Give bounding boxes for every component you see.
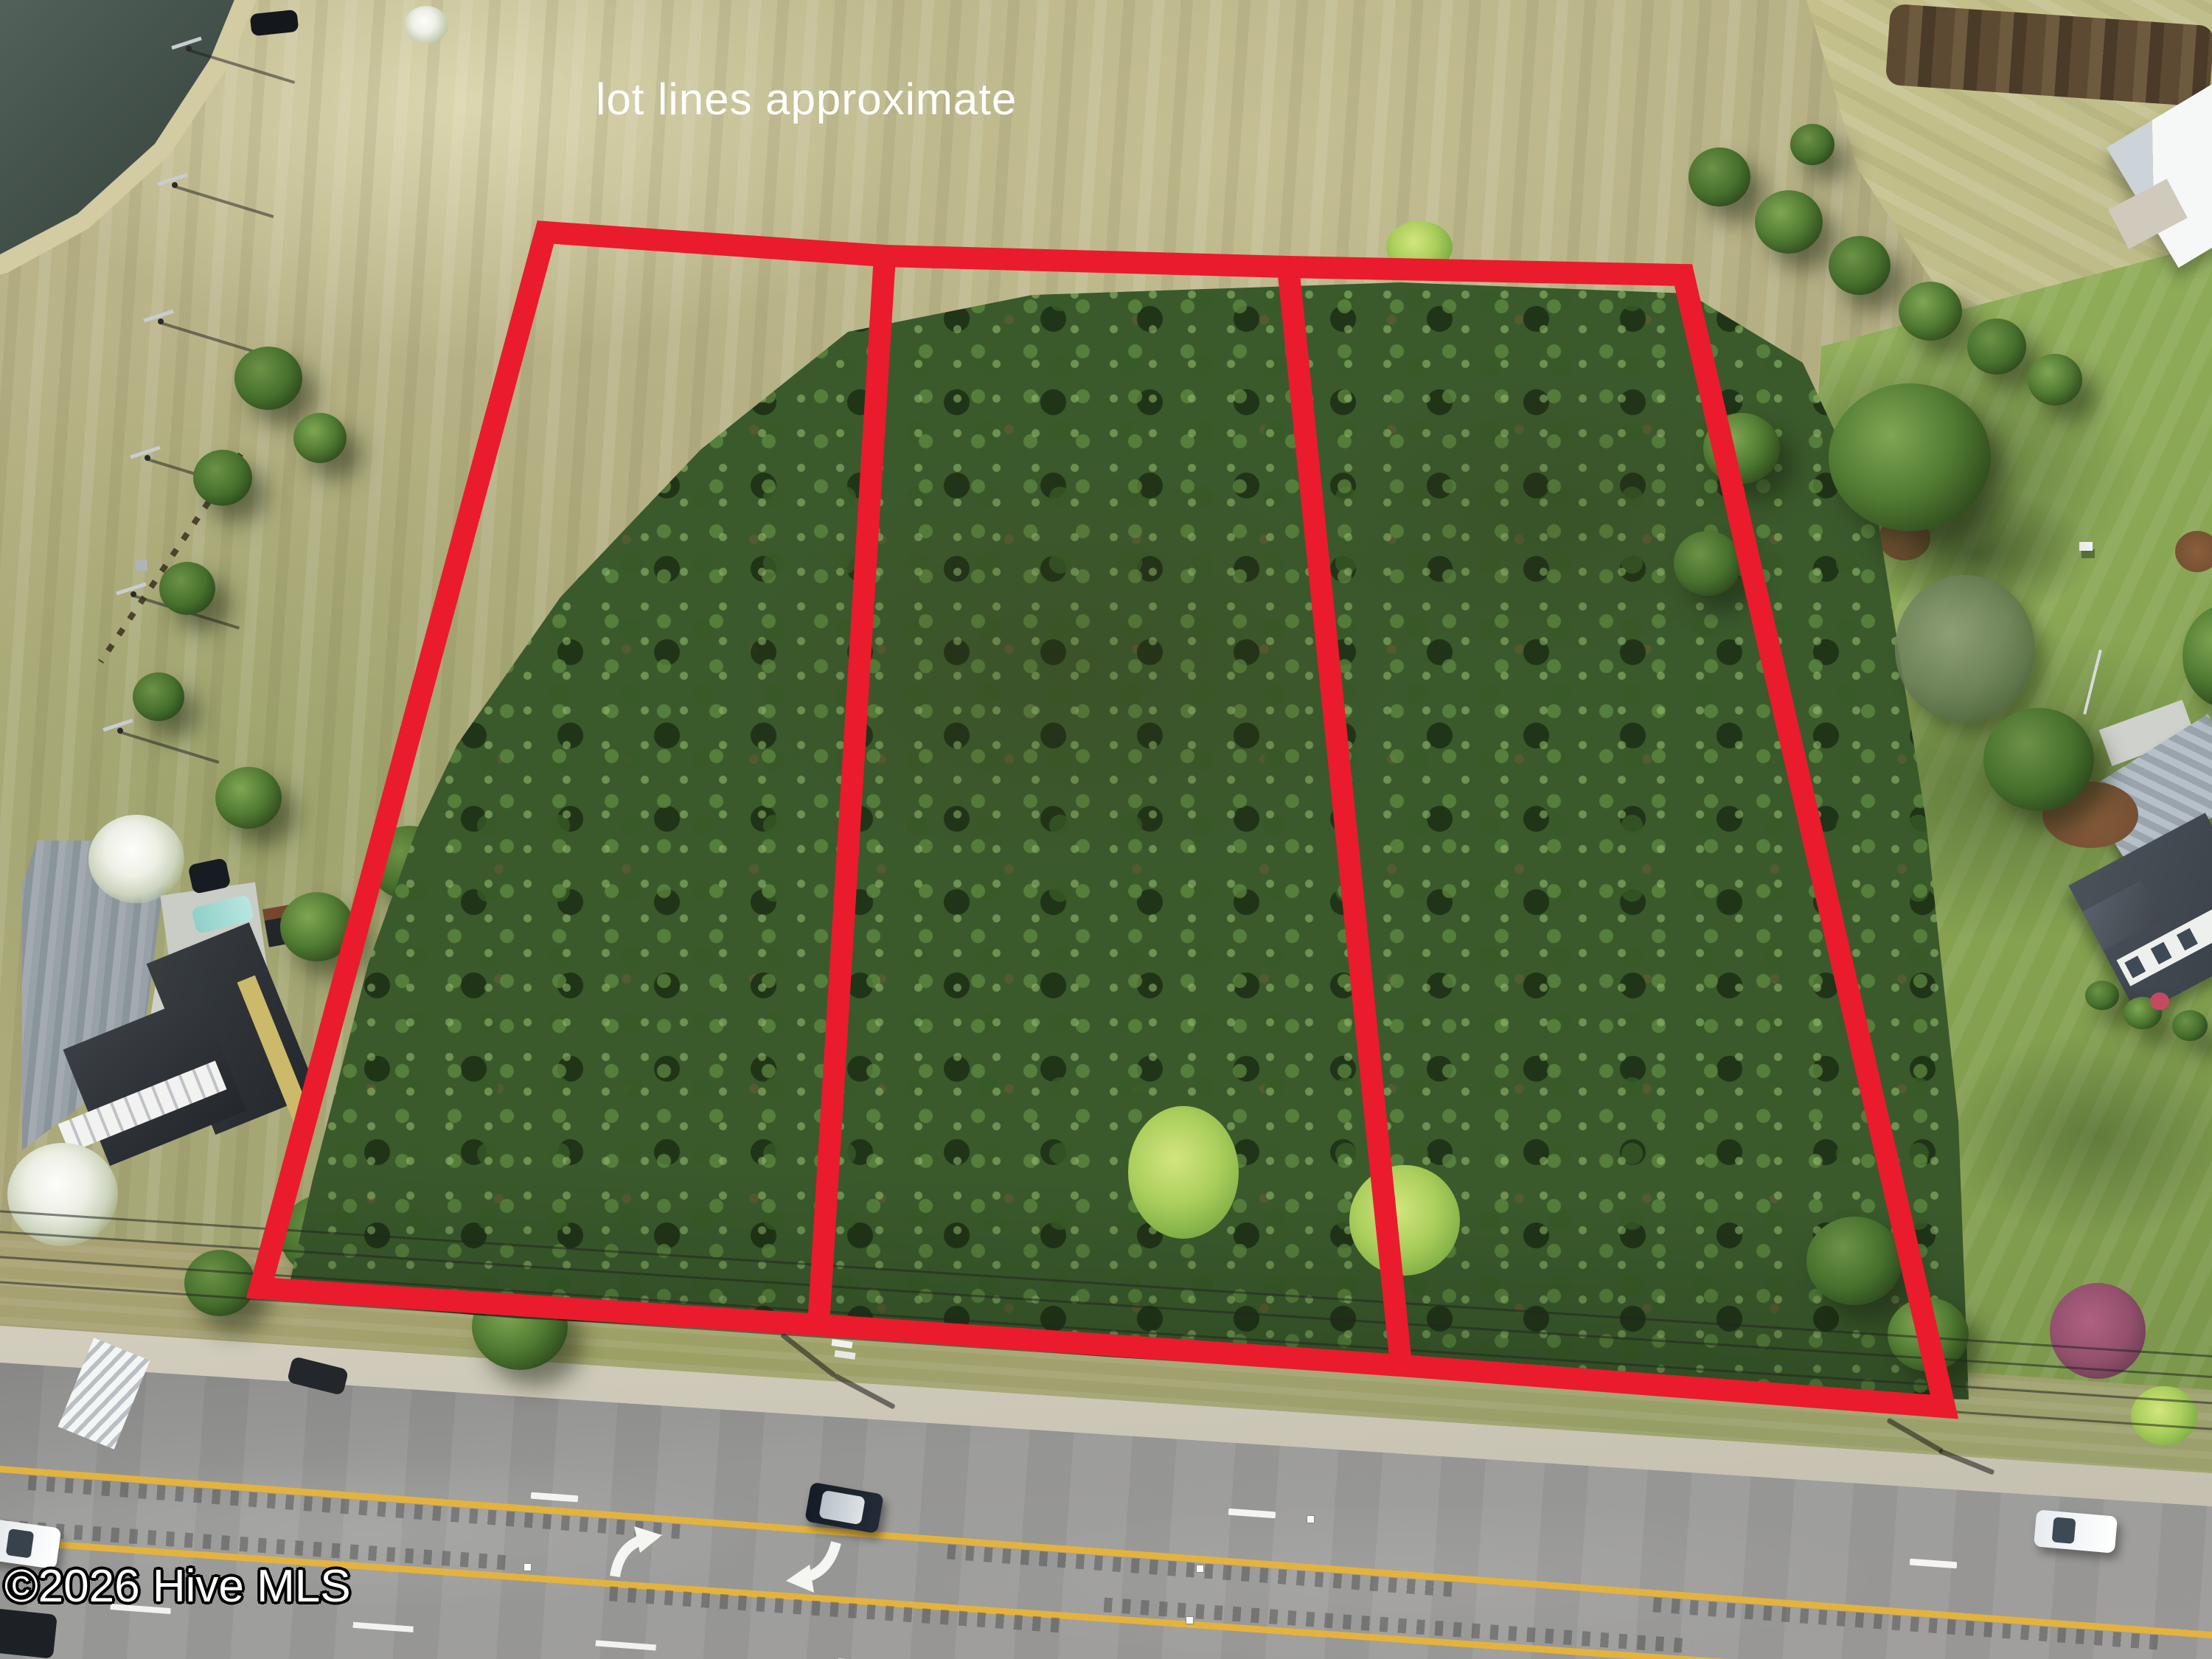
lot-divider-2 xyxy=(1288,267,1401,1364)
lot-lines-overlay xyxy=(0,0,2212,1659)
lot-outline xyxy=(260,232,1944,1407)
lot-divider-1 xyxy=(818,256,885,1325)
mls-watermark: ©2026 Hive MLS xyxy=(4,1560,351,1613)
aerial-photo: lot lines approximate ©2026 Hive MLS xyxy=(0,0,2212,1659)
disclaimer-text: lot lines approximate xyxy=(596,74,1017,125)
